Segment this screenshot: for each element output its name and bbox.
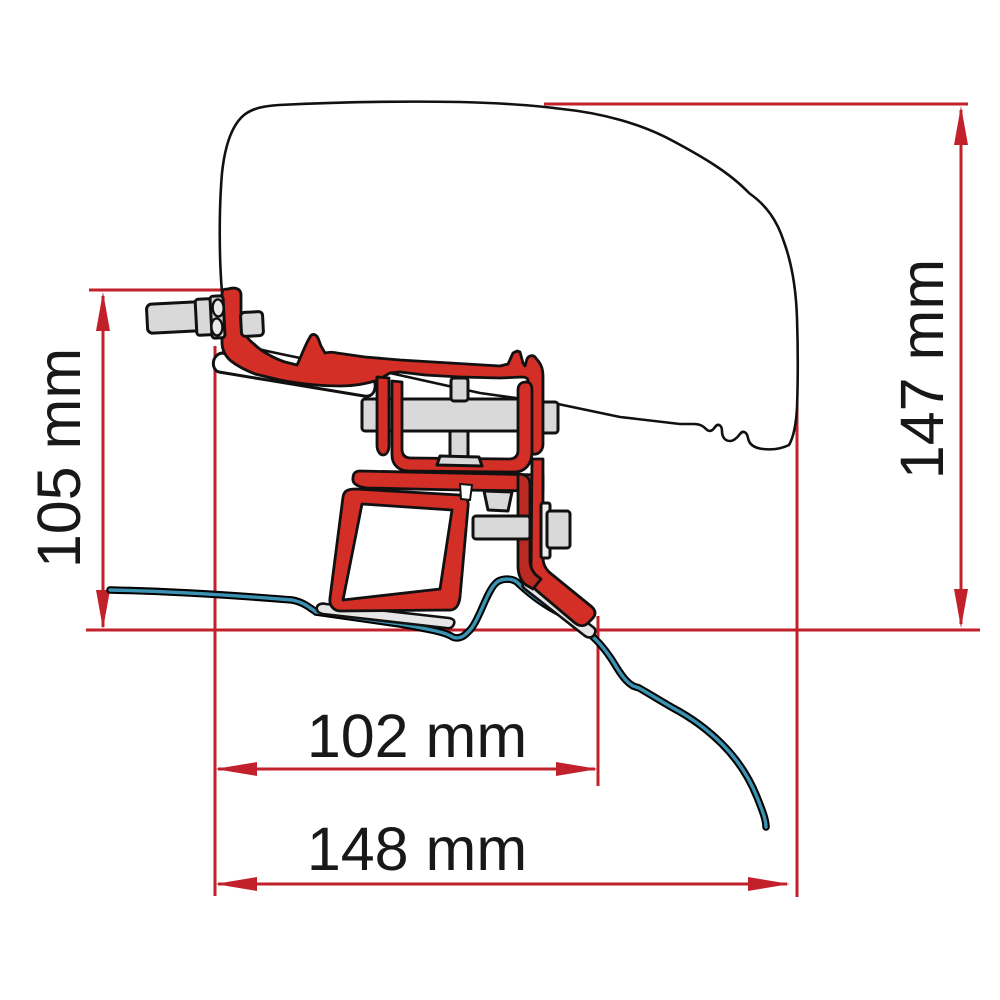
svg-text:105 mm: 105 mm xyxy=(25,348,93,568)
svg-text:148 mm: 148 mm xyxy=(307,815,527,883)
svg-text:147 mm: 147 mm xyxy=(888,259,956,479)
svg-text:102 mm: 102 mm xyxy=(307,702,527,770)
